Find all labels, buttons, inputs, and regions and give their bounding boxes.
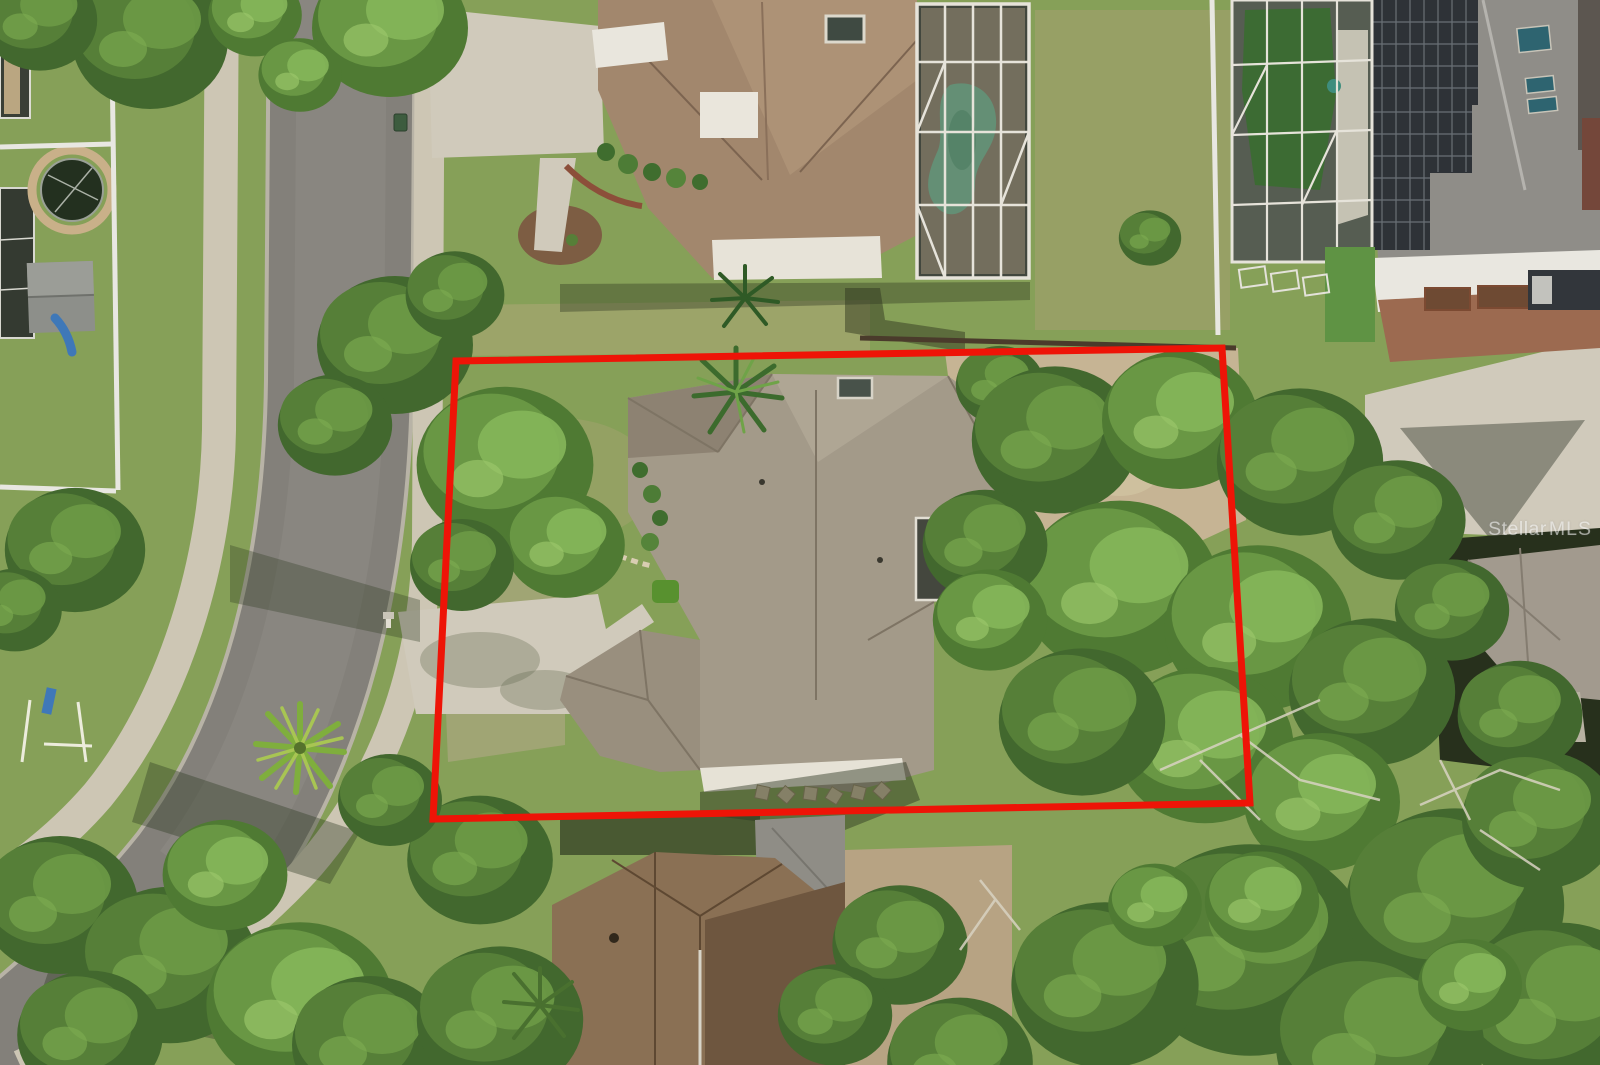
aerial-photo-canvas [0, 0, 1600, 1065]
watermark-stellar: Stellar [1488, 518, 1547, 540]
white-wall [700, 92, 758, 138]
turf-patch [1325, 247, 1375, 342]
dry-lawn-patch [1035, 10, 1230, 330]
pool-enclosure [917, 4, 1029, 278]
stellarmls-watermark: StellarMLS [1488, 518, 1592, 541]
raised-bed [1425, 288, 1470, 310]
aerial-photo: StellarMLS [0, 0, 1600, 1065]
solar-house-pool-cage [1232, 0, 1372, 262]
entry-porch-roof [592, 22, 668, 68]
chimney [826, 16, 864, 42]
boxwood [652, 580, 679, 603]
trash-bin [394, 114, 407, 131]
watermark-mls: MLS [1549, 518, 1592, 540]
subject-chimney [838, 378, 872, 398]
trampoline [41, 159, 103, 221]
